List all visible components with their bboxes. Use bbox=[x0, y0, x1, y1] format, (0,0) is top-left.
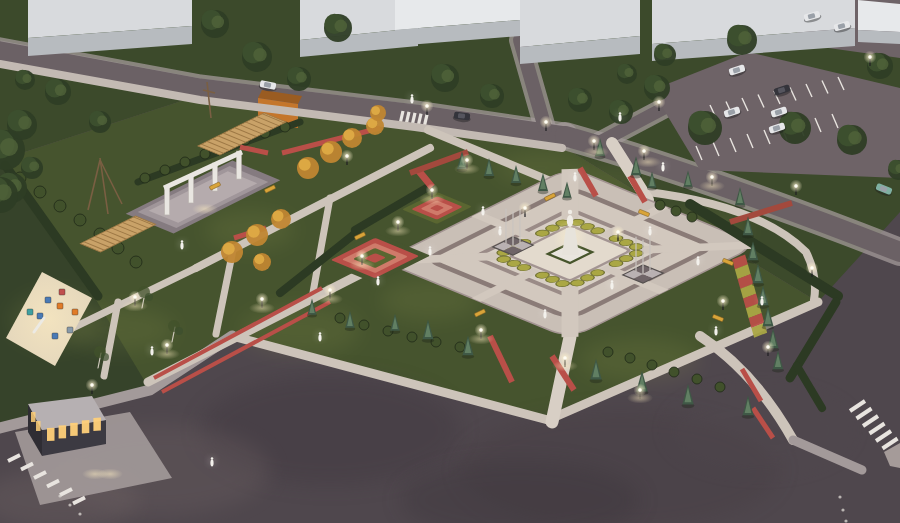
play-equipment bbox=[67, 327, 73, 333]
pedestrian-head bbox=[482, 206, 485, 209]
street-lamp bbox=[721, 299, 724, 302]
trimmed-shrub bbox=[715, 382, 725, 392]
tree-highlight bbox=[18, 116, 32, 130]
street-lamp bbox=[465, 158, 468, 161]
lane-dot bbox=[78, 512, 81, 515]
lane-dot bbox=[844, 519, 847, 522]
pedestrian-head bbox=[662, 162, 665, 165]
street-lamp bbox=[165, 343, 168, 346]
trimmed-shrub bbox=[140, 173, 150, 183]
pedestrian bbox=[210, 460, 213, 467]
trimmed-shrub bbox=[655, 200, 665, 210]
birch-foliage bbox=[175, 327, 183, 335]
pedestrian bbox=[661, 165, 664, 172]
street-lamp bbox=[657, 100, 660, 103]
tree-highlight bbox=[848, 131, 862, 145]
play-equipment bbox=[57, 303, 63, 309]
pedestrian bbox=[696, 259, 699, 266]
render-viewport bbox=[0, 0, 900, 523]
trimmed-shrub bbox=[74, 214, 86, 226]
building-roof bbox=[858, 0, 900, 32]
pedestrian-head bbox=[377, 276, 380, 279]
kiosk-window bbox=[31, 412, 36, 422]
lane-dot bbox=[68, 503, 71, 506]
trimmed-shrub bbox=[669, 367, 679, 377]
tree-highlight bbox=[253, 48, 267, 62]
trimmed-shrub bbox=[407, 332, 417, 342]
tree-highlight bbox=[29, 161, 39, 171]
pedestrian bbox=[714, 329, 717, 336]
lamp-light-pool bbox=[192, 204, 218, 215]
street-lamp bbox=[563, 356, 566, 359]
trimmed-shrub bbox=[692, 374, 702, 384]
street-lamp bbox=[360, 254, 363, 257]
pedestrian bbox=[180, 243, 183, 250]
pedestrian-head bbox=[611, 280, 614, 283]
street-lamp bbox=[396, 220, 399, 223]
autumn-tree-highlight bbox=[248, 226, 260, 238]
pedestrian bbox=[543, 312, 546, 319]
autumn-tree-highlight bbox=[223, 243, 235, 255]
pedestrian-head bbox=[319, 332, 322, 335]
pedestrian bbox=[573, 175, 576, 182]
statue-figure-head bbox=[568, 210, 572, 214]
play-equipment bbox=[45, 297, 51, 303]
park-square-render bbox=[0, 0, 900, 523]
street-lamp bbox=[479, 328, 482, 331]
car-roof bbox=[458, 113, 466, 119]
tree-highlight bbox=[23, 74, 32, 83]
pedestrian-head bbox=[574, 172, 577, 175]
street-lamp bbox=[794, 184, 797, 187]
trimmed-shrub bbox=[671, 206, 681, 216]
lane-dot bbox=[838, 495, 841, 498]
street-lamp bbox=[766, 345, 769, 348]
pedestrian-head bbox=[181, 240, 184, 243]
pedestrian bbox=[376, 279, 379, 286]
tree-highlight bbox=[212, 16, 225, 29]
lamp-light-pool bbox=[583, 147, 609, 158]
trimmed-shrub bbox=[625, 353, 635, 363]
pedestrian-head bbox=[151, 346, 154, 349]
tree-highlight bbox=[877, 58, 889, 70]
birch-foliage bbox=[145, 293, 153, 301]
lamp-light-pool bbox=[635, 157, 661, 168]
trimmed-shrub bbox=[687, 212, 697, 222]
portal-slab bbox=[189, 175, 194, 203]
street-lamp bbox=[425, 104, 428, 107]
kiosk-window bbox=[70, 423, 78, 436]
play-equipment bbox=[52, 333, 58, 339]
street-lamp bbox=[868, 55, 871, 58]
street-lamp bbox=[638, 388, 641, 391]
street-lamp bbox=[710, 175, 713, 178]
street-lamp bbox=[133, 295, 136, 298]
lane-dot bbox=[841, 508, 844, 511]
tree-highlight bbox=[738, 31, 752, 45]
kiosk-window bbox=[36, 421, 41, 431]
pedestrian bbox=[410, 97, 413, 104]
kiosk-window bbox=[82, 420, 90, 433]
birch-foliage bbox=[101, 353, 109, 361]
pedestrian bbox=[648, 229, 651, 236]
trimmed-shrub bbox=[34, 186, 46, 198]
autumn-tree-highlight bbox=[344, 130, 355, 141]
pedestrian-head bbox=[211, 457, 214, 460]
pedestrian-head bbox=[715, 326, 718, 329]
street-lamp bbox=[430, 188, 433, 191]
pedestrian bbox=[150, 349, 153, 356]
tree-highlight bbox=[701, 118, 716, 133]
tree-highlight bbox=[55, 84, 67, 96]
pedestrian-head bbox=[761, 296, 764, 299]
kiosk-window bbox=[93, 418, 101, 431]
street-lamp bbox=[90, 383, 93, 386]
lamp-light-pool bbox=[97, 469, 123, 480]
tree-highlight bbox=[625, 68, 634, 77]
pedestrian bbox=[318, 335, 321, 342]
tree-highlight bbox=[662, 48, 672, 58]
lane-dot bbox=[58, 494, 61, 497]
tree-highlight bbox=[791, 118, 805, 132]
street-lamp bbox=[260, 297, 263, 300]
trimmed-shrub bbox=[130, 256, 142, 268]
street-lamp bbox=[616, 230, 619, 233]
trimmed-shrub bbox=[180, 157, 190, 167]
tree-highlight bbox=[296, 72, 307, 83]
street-lamp bbox=[544, 120, 547, 123]
tree-highlight bbox=[0, 138, 18, 156]
autumn-tree-highlight bbox=[371, 106, 380, 115]
pedestrian-head bbox=[619, 112, 622, 115]
pedestrian-head bbox=[649, 226, 652, 229]
trimmed-shrub bbox=[54, 200, 66, 212]
play-equipment bbox=[72, 309, 78, 315]
tree-highlight bbox=[489, 89, 500, 100]
pedestrian bbox=[428, 249, 431, 256]
play-equipment bbox=[27, 309, 33, 315]
autumn-tree-highlight bbox=[273, 211, 284, 222]
street-lamp bbox=[810, 266, 813, 269]
trimmed-shrub bbox=[160, 165, 170, 175]
portal-slab bbox=[165, 187, 170, 215]
trimmed-shrub bbox=[455, 342, 465, 352]
trimmed-shrub bbox=[359, 320, 369, 330]
autumn-tree-highlight bbox=[254, 254, 264, 264]
tree-highlight bbox=[654, 80, 666, 92]
autumn-tree-highlight bbox=[299, 159, 311, 171]
trimmed-shrub bbox=[335, 313, 345, 323]
street-lamp bbox=[523, 206, 526, 209]
play-equipment bbox=[59, 289, 65, 295]
pedestrian bbox=[481, 209, 484, 216]
trimmed-shrub bbox=[647, 360, 657, 370]
tree-highlight bbox=[97, 115, 107, 125]
building-front bbox=[858, 30, 900, 44]
trimmed-shrub bbox=[603, 347, 613, 357]
pedestrian bbox=[618, 115, 621, 122]
pedestrian-head bbox=[499, 226, 502, 229]
kiosk-window bbox=[47, 428, 55, 441]
tree-highlight bbox=[335, 20, 348, 33]
pedestrian-head bbox=[697, 256, 700, 259]
pedestrian-head bbox=[411, 94, 414, 97]
statue-figure bbox=[567, 215, 573, 227]
street-lamp bbox=[328, 288, 331, 291]
kiosk-window bbox=[59, 425, 67, 438]
pedestrian bbox=[610, 283, 613, 290]
pedestrian bbox=[498, 229, 501, 236]
street-lamp bbox=[592, 139, 595, 142]
pedestrian-head bbox=[429, 246, 432, 249]
tree-highlight bbox=[577, 93, 588, 104]
autumn-tree-highlight bbox=[322, 143, 334, 155]
pedestrian bbox=[760, 299, 763, 306]
tree-highlight bbox=[442, 70, 455, 83]
pedestrian-head bbox=[544, 309, 547, 312]
street-lamp bbox=[642, 149, 645, 152]
street-lamp bbox=[345, 154, 348, 157]
